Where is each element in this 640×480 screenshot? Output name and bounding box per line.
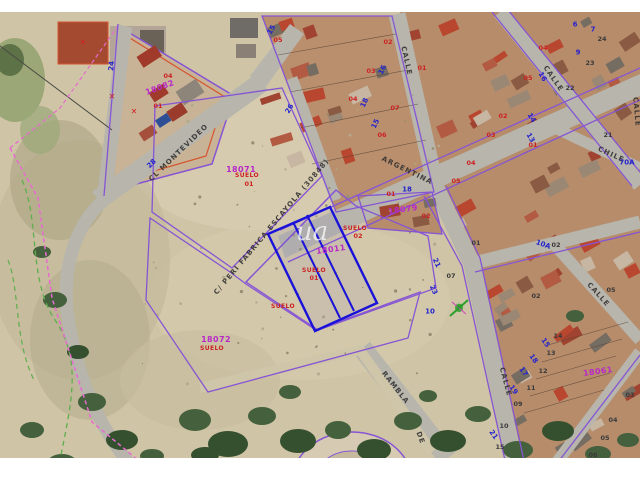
aerial-photo-map[interactable]: CL MONTEVIDEOARGENTINAC/ PERI FABRICA ES… (0, 12, 640, 458)
aerial-map-canvas (0, 12, 640, 458)
cadastral-map-screenshot: CL MONTEVIDEOARGENTINAC/ PERI FABRICA ES… (0, 0, 640, 480)
